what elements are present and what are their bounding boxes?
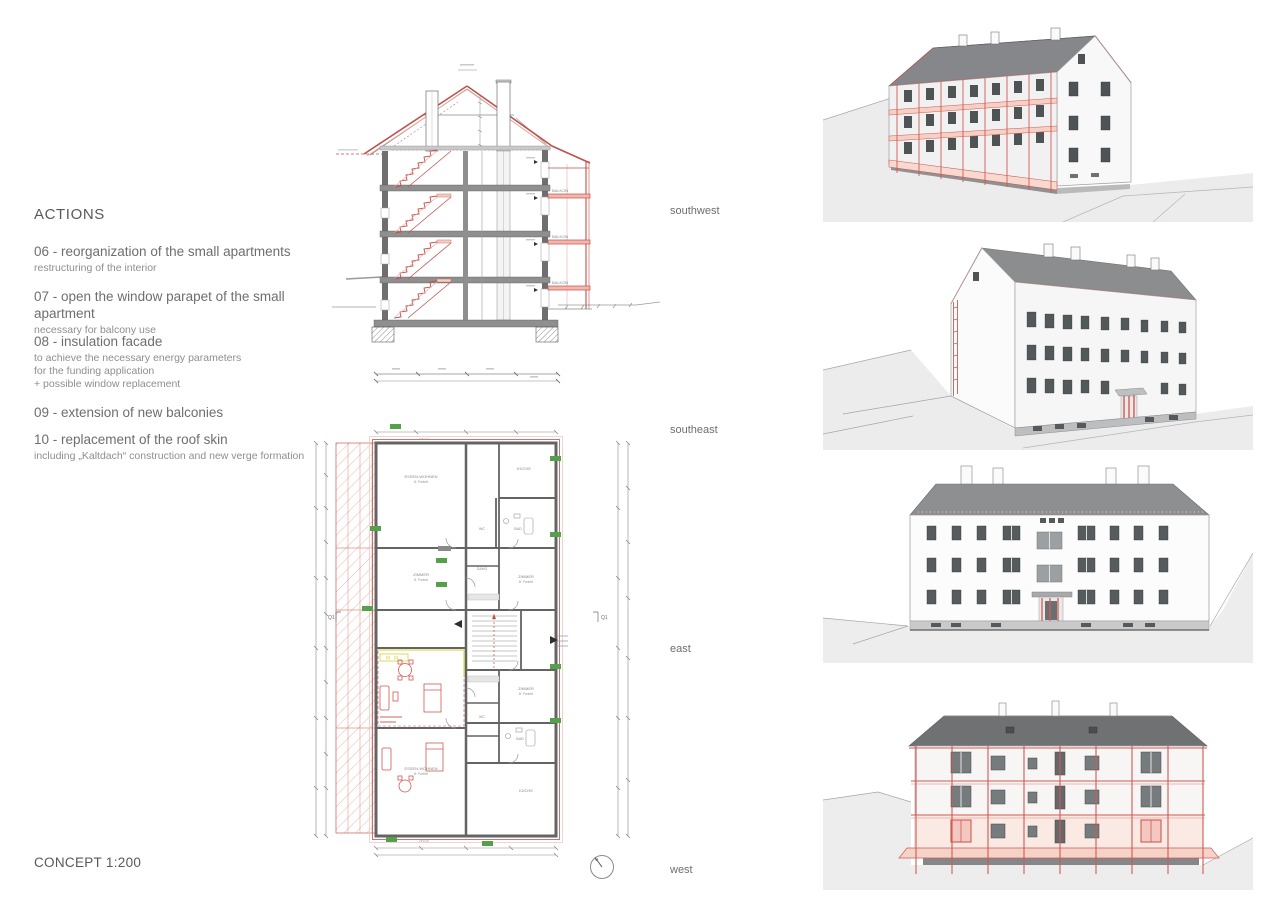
action-title: 09 - extension of new balconies xyxy=(34,404,223,421)
room-label: BAD xyxy=(516,737,524,741)
room-label: WC xyxy=(479,527,485,531)
room-label: ZIMMER xyxy=(518,686,534,691)
wall-tag: FPH-02 xyxy=(419,839,429,843)
room-sublabel: B: Parkett xyxy=(519,580,533,584)
east-facade xyxy=(910,515,1209,630)
action-note: including „Kaltdach“ construction and ne… xyxy=(34,450,304,463)
view-southeast-rendering xyxy=(823,238,1255,450)
action-item-07: 07 - open the window parapet of the smal… xyxy=(34,288,334,337)
chimneys xyxy=(961,466,1149,484)
floor-plan-drawing: ESSEN-WOHNEN B: Parkett KÜCHE BAD WC GAN… xyxy=(306,418,640,860)
wall-tag: FPH-02 xyxy=(419,437,429,441)
roof xyxy=(910,484,1209,515)
action-note: restructuring of the interior xyxy=(34,262,291,275)
room-label: KÜCHE xyxy=(517,466,531,471)
room-label: ESSEN-WOHNEN xyxy=(404,766,437,771)
room-sublabel: B: Parkett xyxy=(519,692,533,696)
section-balconies: BALKON BALKON BALKON xyxy=(548,161,592,309)
building-section-drawing: BALKON BALKON BALKON xyxy=(330,58,662,393)
action-item-10: 10 - replacement of the roof skin includ… xyxy=(34,431,304,463)
room-label: WC xyxy=(479,715,485,719)
plan-balcony-zone xyxy=(336,443,376,833)
balkon-label: BALKON xyxy=(552,234,568,239)
section-level-markers xyxy=(526,157,538,292)
gray-tag xyxy=(438,546,451,551)
room-label: GANG xyxy=(477,567,488,571)
room-label: ESSEN-WOHNEN xyxy=(404,474,437,479)
room-sublabel: B: Parkett xyxy=(414,772,428,776)
view-west-rendering xyxy=(823,672,1255,890)
action-title: 06 - reorganization of the small apartme… xyxy=(34,243,291,260)
action-title: 08 - insulation facade xyxy=(34,333,241,350)
view-label-east: east xyxy=(670,643,691,655)
section-marker-label: Q1 xyxy=(328,615,335,621)
gable-wall xyxy=(951,248,1015,428)
view-east-rendering xyxy=(823,458,1255,663)
room-sublabel: B: Parkett xyxy=(414,480,428,484)
roof xyxy=(909,716,1207,746)
west-facade xyxy=(899,746,1219,874)
room-sublabel: B: Parkett xyxy=(414,578,428,582)
southeast-facade xyxy=(1015,282,1196,436)
action-item-09: 09 - extension of new balconies xyxy=(34,404,223,421)
actions-heading: ACTIONS xyxy=(34,206,334,223)
action-title: 07 - open the window parapet of the smal… xyxy=(34,288,334,322)
plinth xyxy=(910,621,1209,630)
section-chimneys xyxy=(426,80,511,320)
section-marker-label: Q1 xyxy=(601,615,608,621)
action-item-06: 06 - reorganization of the small apartme… xyxy=(34,243,291,275)
view-label-southwest: southwest xyxy=(670,205,720,217)
room-label: ZIMMER xyxy=(413,572,429,577)
room-label: ZIMMER xyxy=(518,574,534,579)
chimneys xyxy=(999,701,1117,716)
action-title: 10 - replacement of the roof skin xyxy=(34,431,304,448)
room-label: BAD xyxy=(514,527,522,531)
concept-board: { "board": { "heading": "ACTIONS", "scal… xyxy=(0,0,1280,905)
balkon-label: BALKON xyxy=(552,188,568,193)
view-label-southeast: southeast xyxy=(670,424,718,436)
actions-panel: ACTIONS 06 - reorganization of the small… xyxy=(34,206,334,223)
balkon-label: BALKON xyxy=(552,280,568,285)
room-label: KÜCHE xyxy=(519,788,533,793)
action-item-08: 08 - insulation facade to achieve the ne… xyxy=(34,333,241,391)
action-note: to achieve the necessary energy paramete… xyxy=(34,352,241,391)
scale-label: CONCEPT 1:200 xyxy=(34,855,141,870)
view-southwest-rendering xyxy=(823,24,1255,222)
view-label-west: west xyxy=(670,864,693,876)
